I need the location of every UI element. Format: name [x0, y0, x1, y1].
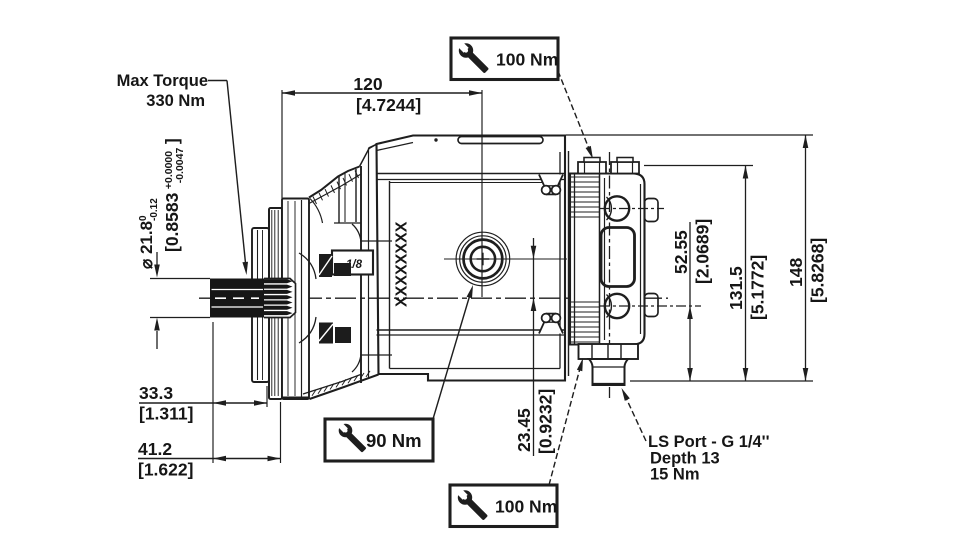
- svg-text:[4.7244]: [4.7244]: [356, 95, 421, 115]
- svg-text:[1.622]: [1.622]: [138, 460, 193, 480]
- svg-text:148: 148: [786, 258, 806, 287]
- svg-text:120: 120: [353, 74, 382, 94]
- svg-text:23.45: 23.45: [514, 408, 534, 452]
- svg-text:90 Nm: 90 Nm: [366, 430, 422, 451]
- svg-text:[5.1772]: [5.1772]: [748, 255, 768, 320]
- svg-text:[2.0689]: [2.0689]: [693, 219, 713, 284]
- svg-text:[1.311]: [1.311]: [139, 404, 193, 424]
- svg-text:XXXXXXXX: XXXXXXXX: [394, 221, 411, 307]
- svg-text:131.5: 131.5: [726, 266, 746, 310]
- svg-text:100 Nm: 100 Nm: [496, 50, 558, 70]
- svg-text:[5.8268]: [5.8268]: [808, 238, 828, 303]
- svg-text:33.3: 33.3: [139, 383, 173, 403]
- svg-text:Max Torque: Max Torque: [117, 72, 208, 90]
- svg-text:330 Nm: 330 Nm: [146, 92, 205, 110]
- svg-text:[0.8583 +0.0000-0.0047 ]: [0.8583 +0.0000-0.0047 ]: [162, 138, 186, 252]
- svg-text:100 Nm: 100 Nm: [495, 497, 557, 517]
- svg-text:52.55: 52.55: [671, 230, 691, 274]
- svg-text:41.2: 41.2: [138, 439, 172, 459]
- svg-text:[0.9232]: [0.9232]: [536, 389, 556, 454]
- svg-text:15 Nm: 15 Nm: [650, 466, 700, 484]
- svg-text:LS Port - G 1/4'': LS Port - G 1/4'': [648, 433, 770, 451]
